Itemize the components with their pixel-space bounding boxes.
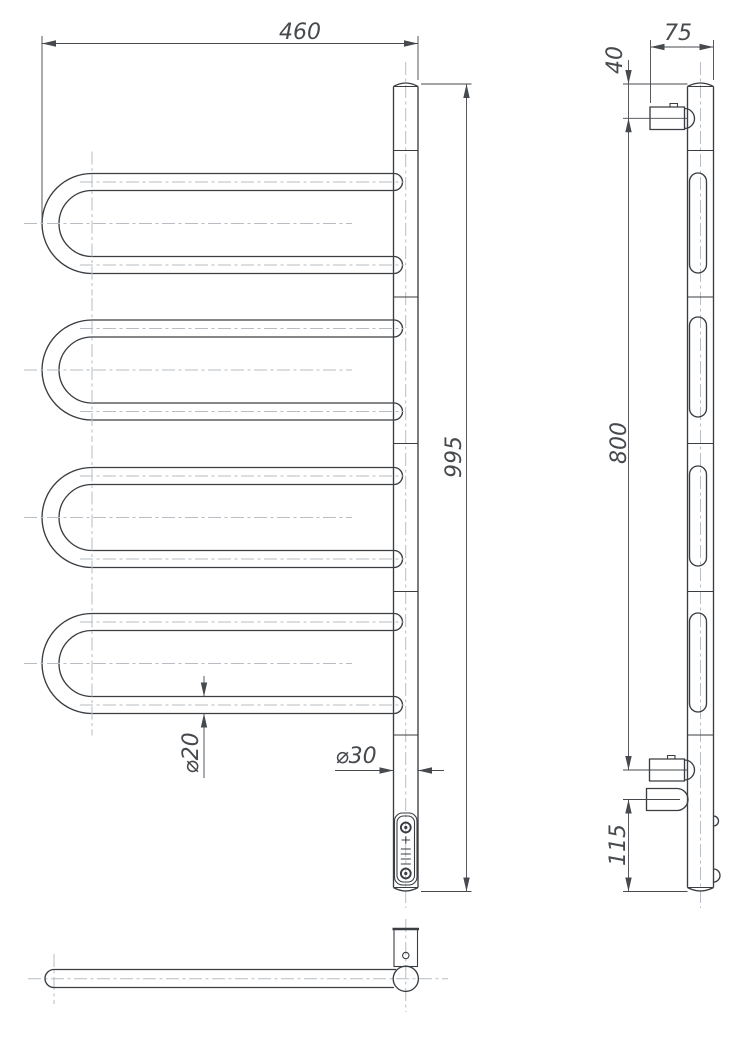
arrow-up-icon bbox=[625, 118, 631, 132]
dim-bottom-offset: 115 bbox=[606, 800, 688, 892]
towel-loop-2 bbox=[24, 298, 404, 442]
dim-bracket-span: 800 bbox=[607, 422, 688, 770]
dim-bracket-span-label: 800 bbox=[607, 422, 632, 464]
arrow-up-icon bbox=[625, 800, 631, 814]
wall-bumps bbox=[714, 816, 721, 882]
arrow-right-icon bbox=[380, 767, 394, 773]
arrow-left-icon bbox=[42, 40, 56, 47]
post-slot-3 bbox=[690, 466, 707, 566]
arrow-down-icon bbox=[201, 683, 207, 697]
front-post bbox=[394, 62, 419, 908]
dim-overall-height-label: 995 bbox=[442, 436, 467, 478]
side-view: 75 40 800 115 bbox=[603, 21, 720, 908]
arrow-down-icon bbox=[625, 756, 631, 770]
dim-depth-label: 75 bbox=[664, 21, 692, 46]
dim-depth: 75 bbox=[651, 21, 714, 103]
dim-top-offset-label: 40 bbox=[603, 46, 628, 74]
dim-column-diameter: ⌀30 bbox=[335, 744, 444, 774]
post-slot-1 bbox=[690, 173, 707, 273]
side-post bbox=[688, 62, 721, 908]
dim-tube-diameter: ⌀20 bbox=[179, 676, 207, 778]
arrow-right-icon bbox=[700, 44, 714, 50]
dim-overall-width-label: 460 bbox=[279, 20, 321, 45]
dim-bottom-offset-label: 115 bbox=[606, 824, 631, 866]
towel-loop-1 bbox=[24, 152, 404, 296]
arrow-down-icon bbox=[625, 878, 631, 892]
post-slot-4 bbox=[690, 613, 707, 712]
dim-column-diameter-label: ⌀30 bbox=[335, 744, 376, 769]
towel-loop-3 bbox=[24, 446, 404, 590]
post-slot-2 bbox=[690, 317, 707, 417]
arrow-up-icon bbox=[201, 714, 207, 728]
bottom-view bbox=[28, 919, 448, 1012]
dim-tube-diameter-label: ⌀20 bbox=[179, 732, 204, 773]
drawing-canvas: 460 995 ⌀20 ⌀30 bbox=[0, 0, 746, 1052]
towel-loop-4 bbox=[24, 592, 404, 736]
dim-top-offset: 40 bbox=[603, 46, 688, 770]
arrow-left-icon bbox=[651, 44, 665, 50]
arrow-up-icon bbox=[463, 84, 469, 98]
front-view: 460 995 ⌀20 ⌀30 bbox=[24, 20, 472, 908]
arrow-down-icon bbox=[463, 878, 469, 892]
arrow-right-icon bbox=[404, 40, 418, 47]
dim-overall-width: 460 bbox=[42, 20, 418, 219]
arrow-left-icon bbox=[418, 767, 432, 773]
towel-rail-drawing: 460 995 ⌀20 ⌀30 bbox=[0, 0, 746, 1052]
